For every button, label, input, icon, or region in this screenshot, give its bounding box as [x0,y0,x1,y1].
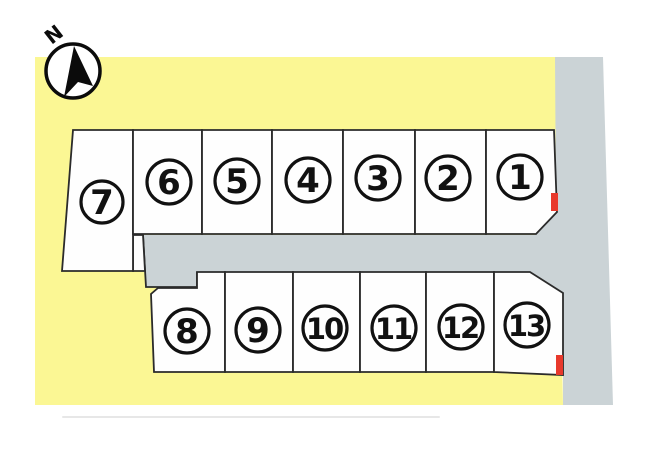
lot-10-number: 10 [306,312,343,346]
north-compass: N [40,20,100,98]
lot-2-number: 2 [436,159,460,199]
red-marker-lot-1 [551,193,558,211]
parcel-sliver [133,235,145,271]
lot-8-number: 8 [175,312,199,352]
plot-map: 1 2 3 4 5 6 7 8 [0,0,652,460]
lot-7-number: 7 [90,183,114,223]
lot-12-number-badge: 12 [439,305,483,349]
lot-3-number: 3 [366,159,390,199]
red-marker-lot-13 [556,355,563,375]
lot-11-number-badge: 11 [372,306,416,350]
artifact-line [62,416,440,418]
lot-13-number-badge: 13 [505,303,549,347]
lot-10-number-badge: 10 [303,306,347,350]
lot-13-number: 13 [508,309,544,343]
lot-9-number: 9 [246,311,270,351]
lot-4-number: 4 [296,161,320,201]
lot-11-number: 11 [375,312,412,346]
lot-12-number: 12 [442,311,478,345]
lot-1-number: 1 [508,158,532,198]
plot-map-svg: 1 2 3 4 5 6 7 8 [0,0,652,460]
lot-5-number: 5 [225,162,249,202]
lot-6-number: 6 [157,163,181,203]
